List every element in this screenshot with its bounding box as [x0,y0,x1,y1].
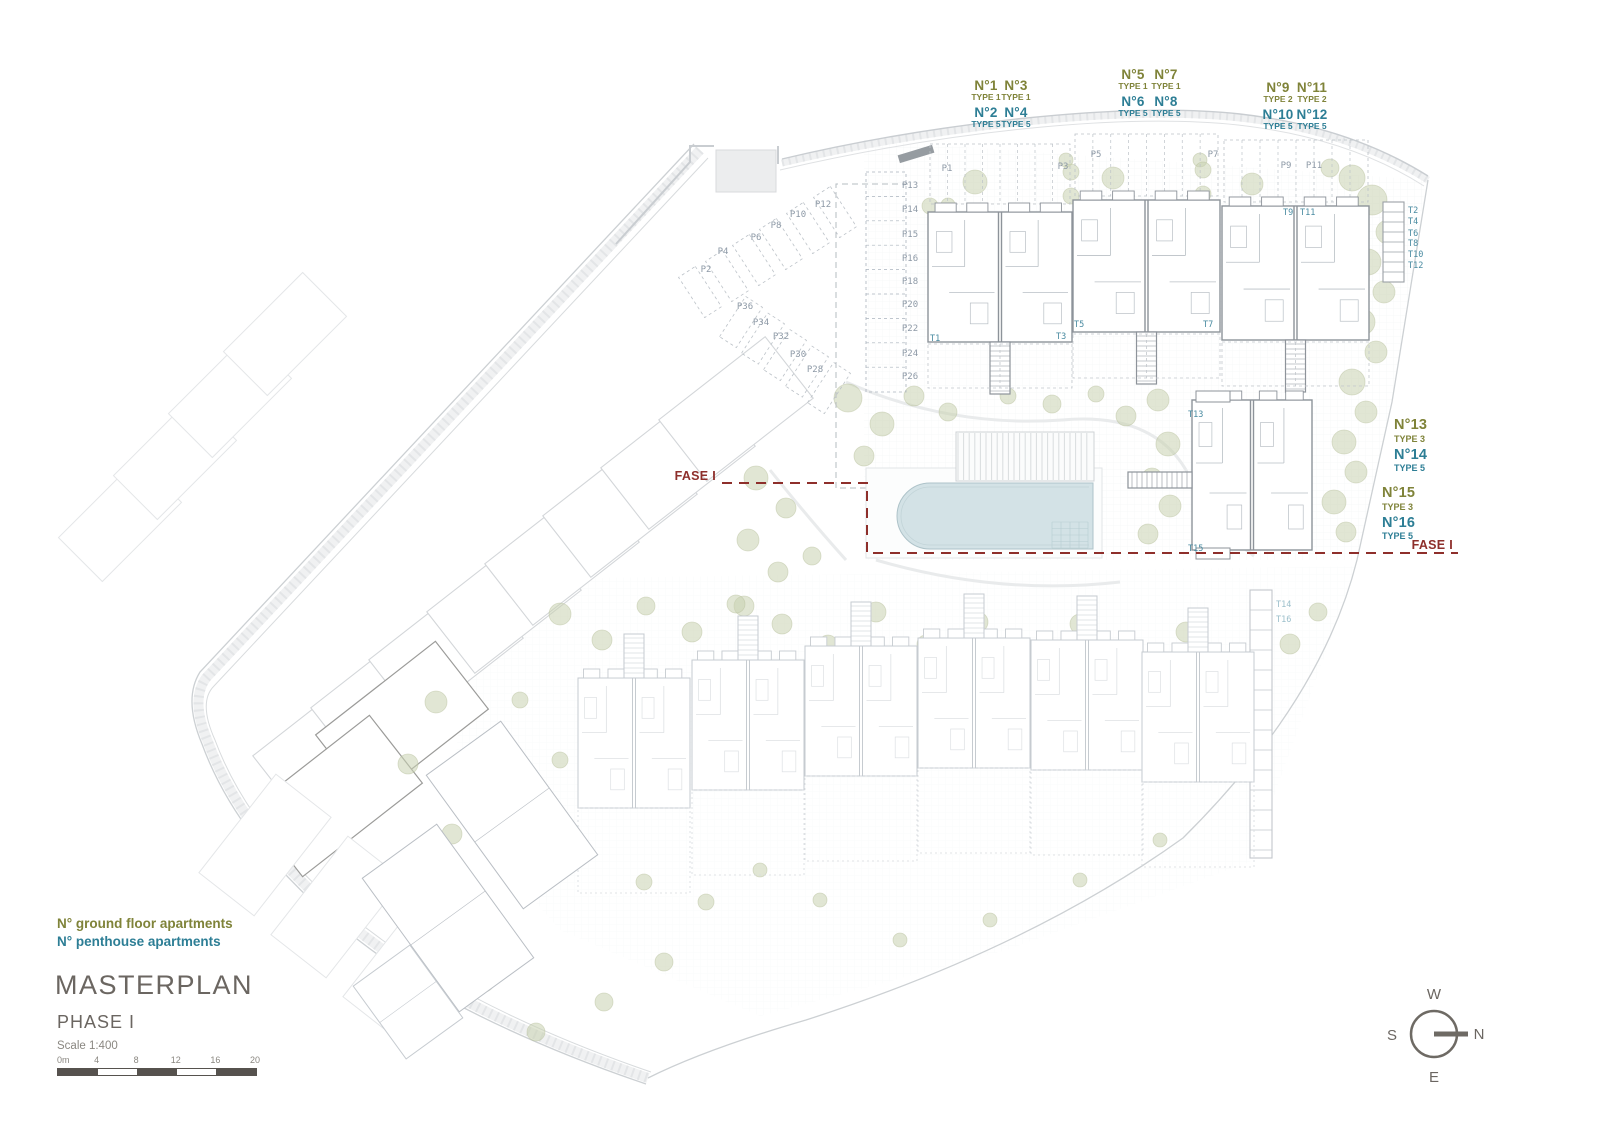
tree [595,993,613,1011]
block-tag-label: T7 [1203,320,1213,330]
swimming-pool [897,483,1093,549]
tree [636,874,652,890]
balcony [923,629,939,638]
scale-tick: 16 [210,1055,220,1065]
block-tag-label: T15 [1188,544,1203,554]
tree [398,754,418,774]
tree [772,614,792,634]
parking-space-label: P14 [902,205,918,215]
compass-south-label: S [1387,1027,1397,1044]
balcony [1009,203,1030,212]
tree [870,412,894,436]
parking-space-label: P1 [942,164,953,174]
phase-boundary-label: FASE I [675,469,716,483]
tree [1073,873,1087,887]
unit-type-label: TYPE 5 [1394,463,1425,473]
parking-space-label: P15 [902,230,918,240]
tree [1147,389,1169,411]
storage-room-label: T6 [1408,229,1418,239]
scale-text: Scale 1:400 [57,1040,118,1052]
tree [1373,281,1395,303]
block-tag-label: T14 [1276,600,1291,610]
unit-type-label: TYPE 5 [1297,121,1327,131]
tree [1138,524,1158,544]
balcony [1337,197,1359,206]
unit-number-label: N°7 [1154,67,1177,82]
tree [1309,603,1327,621]
tree [655,953,673,971]
entrance-pad [716,150,776,192]
tree [768,562,788,582]
balcony [1229,643,1245,652]
unit-number-label: N°8 [1154,94,1178,109]
balcony [608,669,624,678]
storage-room-label: T12 [1408,261,1423,271]
unit-type-label: TYPE 5 [1118,108,1148,118]
balcony [1118,631,1134,640]
block-tag-label: T16 [1276,615,1291,625]
tree [1159,495,1181,517]
info-block: N° ground floor apartments N° penthouse … [57,916,337,1086]
balcony [1262,197,1284,206]
scale-tick: 12 [171,1055,181,1065]
tree [512,692,528,708]
tree [1332,430,1356,454]
tree [552,752,568,768]
tree [1195,162,1211,178]
balcony [835,637,851,646]
balcony [722,651,738,660]
unit-number-label: N°4 [1004,105,1028,120]
parking-space-label: P13 [902,181,918,191]
tree [727,595,745,613]
parking-space-label: P18 [902,277,918,287]
unit-type-label: TYPE 5 [1001,119,1031,129]
parking-space-label: P20 [902,300,918,310]
staircase [1188,608,1208,652]
balcony [1040,203,1061,212]
balcony [1155,191,1177,200]
scale-bar-segment [58,1069,98,1075]
balcony [1188,191,1210,200]
balcony [948,629,964,638]
balcony [892,637,908,646]
tree [1345,461,1367,483]
unit-number-label: N°3 [1004,78,1028,93]
parking-space-label: P16 [902,254,918,264]
compass-east-label: E [1429,1069,1439,1086]
parking-stall [814,186,857,237]
balcony [935,203,956,212]
balcony [1147,643,1163,652]
parking-space-label: P26 [902,372,918,382]
scale-tick: 4 [94,1055,99,1065]
unit-type-label: TYPE 5 [1151,108,1181,118]
balcony [1113,191,1135,200]
tree [939,403,957,421]
unit-number-label: N°12 [1297,107,1328,122]
phase-subtitle: PHASE I [57,1012,135,1033]
unit-type-label: TYPE 5 [1263,121,1293,131]
tree [904,386,924,406]
tree [854,446,874,466]
tree [637,597,655,615]
block-tag-label: T13 [1188,410,1203,420]
parking-space-label: P11 [1306,161,1322,171]
scale-tick: 20 [250,1055,260,1065]
tree [983,913,997,927]
storage-room-label: T2 [1408,206,1418,216]
unit-number-label: N°14 [1394,447,1427,463]
tree [834,384,862,412]
tree [1322,490,1346,514]
balcony [1080,191,1102,200]
unit-number-label: N°2 [974,105,997,120]
parking-space-label: P12 [815,200,831,210]
parking-space-label: P30 [790,350,806,360]
unit-type-label: TYPE 1 [1151,81,1181,91]
tree [1116,406,1136,426]
tree [425,691,447,713]
balcony [779,651,795,660]
tree [744,466,768,490]
parking-space-label: P2 [701,265,712,275]
tree [1280,634,1300,654]
unit-type-label: TYPE 1 [971,92,1001,102]
tree [1088,386,1104,402]
block-tag-label: T9 [1283,208,1293,218]
masterplan-title: MASTERPLAN [55,970,253,1001]
legend-penthouse: N° penthouse apartments [57,934,221,949]
parking-space-label: P28 [807,365,823,375]
tree [1321,159,1339,177]
tree [803,547,821,565]
scale-bar-segment [216,1069,256,1075]
balcony [1229,197,1251,206]
balcony [967,203,988,212]
unit-type-label: TYPE 2 [1263,94,1293,104]
balcony [665,669,681,678]
tree [776,498,796,518]
parking-space-label: P9 [1281,161,1292,171]
staircase [964,594,984,638]
tree [592,630,612,650]
unit-number-label: N°13 [1394,417,1427,433]
staircase [1077,596,1097,640]
unit-type-label: TYPE 2 [1297,94,1327,104]
parking-space-label: P10 [790,210,806,220]
tree [1355,401,1377,423]
scale-tick: 0m [57,1055,70,1065]
staircase [851,602,871,646]
parking-space-label: P8 [771,221,782,231]
scale-tick: 8 [134,1055,139,1065]
phase-boundary-label: FASE I [1412,538,1453,552]
compass: W S N E [1387,986,1484,1086]
scale-bar [57,1068,257,1076]
tree [1102,167,1124,189]
balcony [1304,197,1326,206]
parking-space-label: P36 [737,302,753,312]
tree [1339,165,1365,191]
unit-type-label: TYPE 1 [1001,92,1031,102]
unit-number-label: N°5 [1121,67,1145,82]
parking-space-label: P4 [718,247,729,257]
parking-space-label: P22 [902,324,918,334]
scale-bar-segment [98,1069,138,1075]
balcony [1061,631,1077,640]
balcony [810,637,826,646]
tree [1156,432,1180,456]
unit-number-label: N°9 [1266,80,1289,95]
balcony [1036,631,1052,640]
storage-room-label: T10 [1408,250,1423,260]
block-tag-label: T1 [930,334,940,344]
storage-room-label: T8 [1408,239,1418,249]
staircase [624,634,644,678]
balcony [1005,629,1021,638]
tree [963,170,987,194]
staircase [1128,472,1192,488]
staircase [738,616,758,660]
parking-space-label: P32 [773,332,789,342]
tree [1043,395,1061,413]
tree [698,894,714,910]
block-tag-label: T11 [1300,208,1315,218]
tree [682,622,702,642]
legend-ground-floor: N° ground floor apartments [57,916,233,931]
tree [737,529,759,551]
unit-type-label: TYPE 5 [1382,531,1413,541]
unit-number-label: N°11 [1297,80,1328,95]
balcony [1286,391,1304,400]
tree [549,603,571,625]
tree [1153,833,1167,847]
tree [1339,369,1365,395]
tree [527,1023,545,1041]
parking-space-label: P7 [1208,150,1219,160]
tree [893,933,907,947]
parking-space-label: P3 [1058,162,1069,172]
scale-bar-segment [177,1069,217,1075]
compass-north-label: N [1474,1026,1485,1043]
storage-room-label: T4 [1408,217,1418,227]
balcony [697,651,713,660]
tree [813,893,827,907]
unit-type-label: TYPE 3 [1382,502,1413,512]
parking-space-label: P5 [1091,150,1102,160]
block-tag-label: T3 [1056,332,1066,342]
unit-type-label: TYPE 1 [1118,81,1148,91]
parking-stall [706,250,749,301]
scale-ticks: 0m 4 8 12 16 20 [57,1055,257,1066]
tree [1365,341,1387,363]
unit-number-label: N°15 [1382,485,1415,501]
block-tag-label: T5 [1074,320,1084,330]
tree [1336,522,1356,542]
masterplan-drawing: FASE I FASE I N°1 N°3 TYPE 1 TYPE 1 N°2 … [0,0,1600,1132]
parking-space-label: P24 [902,349,918,359]
unit-number-label: N°16 [1382,515,1415,531]
parking-space-label: P6 [751,233,762,243]
unit-number-label: N°6 [1121,94,1145,109]
balcony [1172,643,1188,652]
unit-type-label: TYPE 5 [971,119,1001,129]
unit-number-label: N°10 [1263,107,1294,122]
balcony [583,669,599,678]
scale-bar-segment [137,1069,177,1075]
compass-west-label: W [1427,986,1442,1003]
unit-number-label: N°1 [974,78,998,93]
parking-space-label: P34 [753,318,769,328]
balcony [1259,391,1277,400]
unit-type-label: TYPE 3 [1394,434,1425,444]
